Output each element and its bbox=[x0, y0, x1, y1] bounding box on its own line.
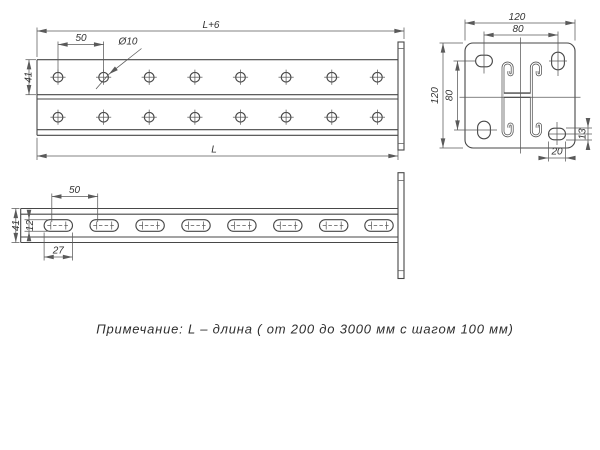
dim-label-face-width: 41 bbox=[24, 72, 35, 83]
side-view: 50 41 12 27 bbox=[11, 173, 404, 279]
flange-plate-edge bbox=[398, 173, 404, 279]
hole bbox=[279, 70, 294, 85]
dim-label-plate-width: 120 bbox=[509, 12, 526, 23]
dim-label-overall-length: L+6 bbox=[203, 20, 220, 31]
oblong-slot bbox=[320, 220, 348, 232]
hole bbox=[324, 70, 339, 85]
dim-label-plate-height: 120 bbox=[430, 87, 441, 104]
oblong-slot bbox=[228, 220, 256, 232]
hole bbox=[187, 110, 202, 125]
hole bbox=[370, 110, 385, 125]
plan-view: L+6 50 Ø10 41 L bbox=[24, 20, 405, 160]
profile-right-channel bbox=[531, 63, 540, 136]
dim-label-corner-slot-width: 13 bbox=[578, 128, 589, 140]
channel-profile bbox=[503, 63, 541, 136]
dim-label-body-length: L bbox=[211, 145, 217, 156]
hole bbox=[187, 70, 202, 85]
plan-holes-row-bottom bbox=[50, 110, 385, 125]
note-text: Примечание: L – длина ( от 200 до 3000 м… bbox=[96, 322, 513, 337]
profile-left-channel bbox=[503, 63, 512, 136]
dim-label-slot-width: 12 bbox=[25, 220, 36, 232]
dim-label-corner-slot-length: 20 bbox=[550, 147, 563, 158]
oblong-slot bbox=[274, 220, 302, 232]
hole bbox=[50, 110, 65, 125]
dim-label-height: 41 bbox=[11, 220, 22, 231]
strut-drawing: L+6 50 Ø10 41 L bbox=[0, 0, 600, 450]
oblong-slot bbox=[90, 220, 118, 232]
flange-plate-edge bbox=[398, 42, 404, 150]
side-dimensions: 50 41 12 27 bbox=[11, 185, 98, 261]
dim-label-hole-diameter: Ø10 bbox=[118, 37, 138, 48]
plan-dimensions: L+6 50 Ø10 41 L bbox=[24, 20, 405, 160]
side-slots bbox=[44, 220, 393, 232]
plan-outline bbox=[37, 42, 404, 150]
hole bbox=[142, 110, 157, 125]
hole bbox=[142, 70, 157, 85]
oblong-slot bbox=[365, 220, 393, 232]
dim-label-hole-pitch: 50 bbox=[75, 33, 87, 44]
end-view: 120 80 120 80 13 20 bbox=[430, 12, 592, 162]
plan-holes-row-top bbox=[50, 70, 385, 85]
hole bbox=[96, 110, 111, 125]
dim-label-slot-length: 27 bbox=[52, 246, 65, 257]
dim-label-hole-spacing-h: 80 bbox=[512, 24, 524, 35]
end-dimensions: 120 80 120 80 13 20 bbox=[430, 12, 592, 162]
hole bbox=[324, 110, 339, 125]
oblong-slot bbox=[44, 220, 72, 232]
hole bbox=[370, 70, 385, 85]
dim-label-hole-spacing-v: 80 bbox=[445, 90, 456, 102]
oblong-slot bbox=[182, 220, 210, 232]
dim-label-slot-pitch: 50 bbox=[69, 185, 81, 196]
hole bbox=[279, 110, 294, 125]
technical-drawing-sheet: L+6 50 Ø10 41 L bbox=[0, 0, 600, 450]
oblong-slot bbox=[136, 220, 164, 232]
hole bbox=[233, 110, 248, 125]
hole bbox=[233, 70, 248, 85]
